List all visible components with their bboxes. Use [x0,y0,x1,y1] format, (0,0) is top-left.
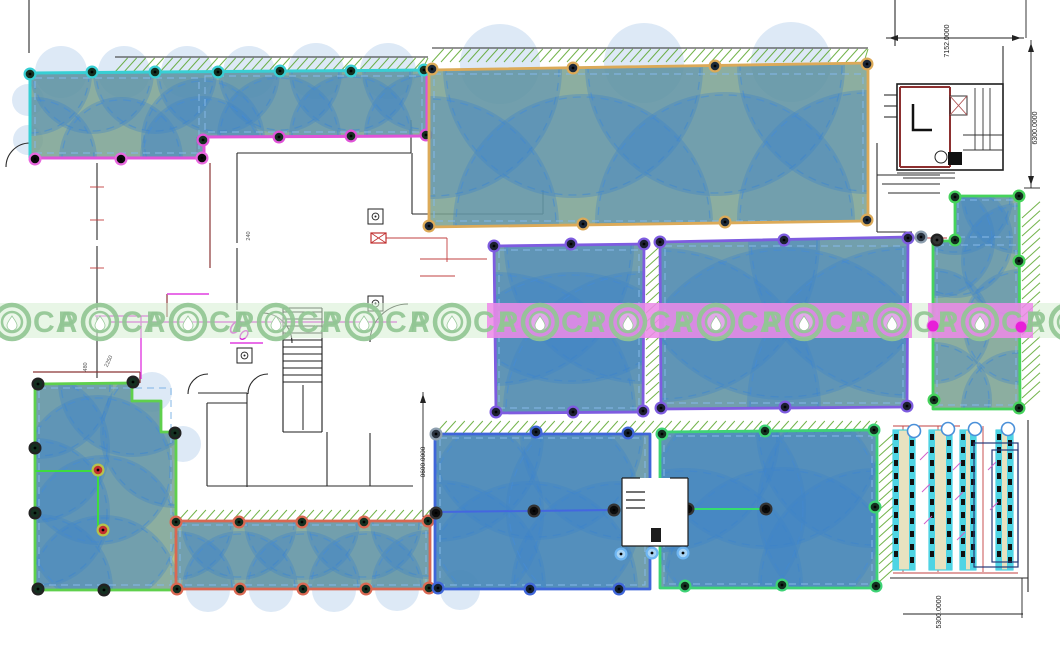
device-dot[interactable] [171,583,184,596]
device-dot[interactable] [655,402,668,415]
device-dot[interactable] [273,131,286,144]
device-dot[interactable] [622,427,635,440]
device-dot[interactable] [870,580,883,593]
svg-text:P: P [762,306,783,339]
device-dot[interactable] [638,238,651,251]
device-dot[interactable] [423,220,436,233]
device-dot[interactable] [949,234,962,247]
device-dot[interactable] [861,214,874,227]
device-dot[interactable] [567,62,580,75]
floor-plan-viewport[interactable]: 7152.00006300.00005300.00000600.00002404… [0,0,1060,645]
device-dot[interactable] [297,583,310,596]
device-dot[interactable] [679,580,692,593]
dimension-label: 0600.0000 [420,446,427,477]
device-dot[interactable] [274,65,287,78]
device-dot[interactable] [869,501,882,514]
device-dot[interactable] [760,503,773,516]
device-dot[interactable] [868,424,881,437]
small-dim-label: 480 [83,362,89,371]
device-dot[interactable] [490,406,503,419]
device-dot[interactable] [97,524,110,537]
device-dot[interactable] [928,321,939,332]
dimension-label: 6300.0000 [1032,111,1039,144]
svg-text:P: P [146,306,167,339]
small-dim-label: 240 [246,231,252,240]
device-dot[interactable] [901,400,914,413]
device-dot[interactable] [1013,255,1026,268]
device-dot[interactable] [524,583,537,596]
device-dot[interactable] [345,130,358,143]
device-dot[interactable] [613,583,626,596]
device-dot[interactable] [776,579,789,592]
wc-room [897,84,1003,178]
dimension-label: 5300.0000 [936,595,943,628]
device-dot[interactable] [1013,402,1026,415]
svg-text:P: P [850,306,871,339]
device-dot[interactable] [29,507,42,520]
device-dot[interactable] [719,216,732,229]
device-dot[interactable] [24,68,37,81]
svg-text:P: P [322,306,343,339]
device-dot[interactable] [345,65,358,78]
device-dot[interactable] [1016,322,1027,333]
device-dot[interactable] [127,376,140,389]
device-dot[interactable] [169,427,182,440]
device-dot[interactable] [646,547,659,560]
device-dot[interactable] [234,583,247,596]
device-dot[interactable] [615,548,628,561]
svg-text:P: P [938,306,959,339]
device-dot[interactable] [426,63,439,76]
svg-text:P: P [498,306,519,339]
device-dot[interactable] [608,504,621,517]
svg-text:P: P [234,306,255,339]
device-dot[interactable] [656,428,669,441]
device-dot[interactable] [432,582,445,595]
device-dot[interactable] [1013,190,1026,203]
device-dot[interactable] [149,66,162,79]
device-dot[interactable] [92,464,105,477]
device-dot[interactable] [430,428,443,441]
svg-text:P: P [674,306,695,339]
floor-plan-canvas[interactable]: 7152.00006300.00005300.00000600.00002404… [0,0,1060,645]
device-dot[interactable] [778,234,791,247]
device-dot[interactable] [296,516,309,529]
device-dot[interactable] [654,236,667,249]
device-dot[interactable] [212,66,225,79]
device-dot[interactable] [430,507,443,520]
dimension-label: 7152.0000 [944,24,951,57]
device-dot[interactable] [567,406,580,419]
device-dot[interactable] [949,191,962,204]
svg-text:P: P [1026,306,1047,339]
watermark-band: PCAPCAPCAPCAPCAPCAPCAPCAPCAPCAPCAPCAPCA [0,303,1060,339]
device-dot[interactable] [29,153,42,166]
device-dot[interactable] [530,426,543,439]
device-dot[interactable] [915,231,928,244]
device-dot[interactable] [637,405,650,418]
svg-text:P: P [410,306,431,339]
device-dot[interactable] [709,60,722,73]
device-dot[interactable] [233,516,246,529]
device-dot[interactable] [360,583,373,596]
device-dot[interactable] [488,240,501,253]
device-dot[interactable] [98,584,111,597]
device-dot[interactable] [32,378,45,391]
device-dot[interactable] [196,152,209,165]
device-dot[interactable] [928,394,941,407]
device-dot[interactable] [170,516,183,529]
device-dot[interactable] [565,238,578,251]
svg-text:P: P [58,306,79,339]
device-dot[interactable] [32,583,45,596]
elevator-shaft [622,478,688,546]
device-dot[interactable] [115,153,128,166]
device-dot[interactable] [861,58,874,71]
device-dot[interactable] [358,516,371,529]
device-dot[interactable] [29,442,42,455]
device-dot[interactable] [779,401,792,414]
device-dot[interactable] [902,232,915,245]
device-dot[interactable] [86,66,99,79]
svg-text:P: P [586,306,607,339]
device-dot[interactable] [577,218,590,231]
device-dot[interactable] [197,134,210,147]
device-dot[interactable] [759,425,772,438]
device-dot[interactable] [677,547,690,560]
device-dot[interactable] [931,234,944,247]
device-dot[interactable] [528,505,541,518]
